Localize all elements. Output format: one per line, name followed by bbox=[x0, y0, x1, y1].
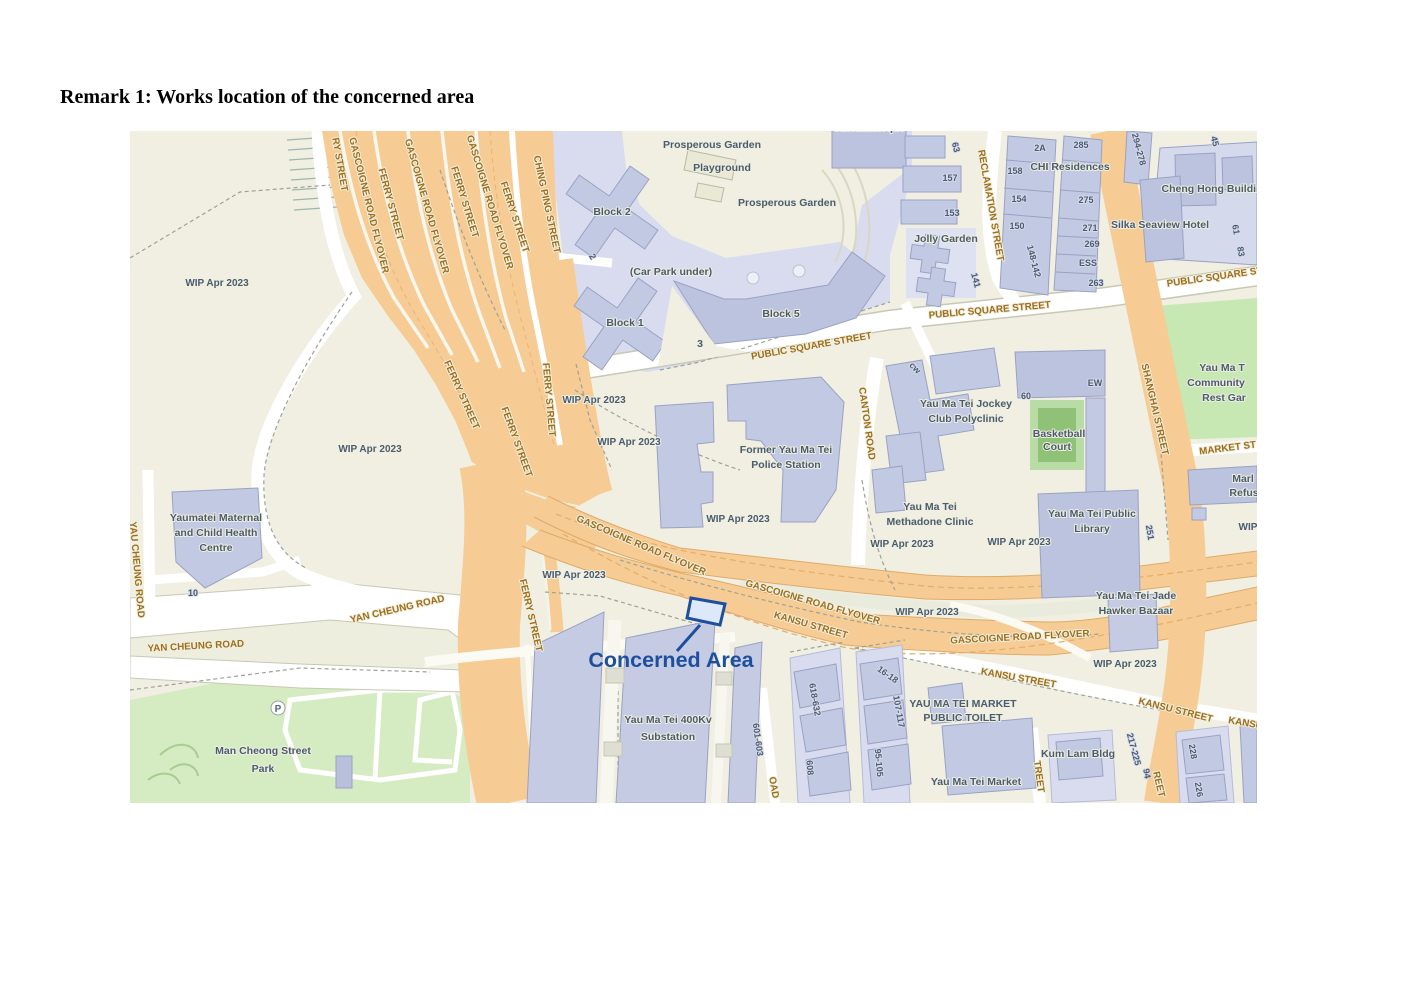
svg-text:Basketball: Basketball bbox=[1033, 428, 1086, 440]
svg-text:271: 271 bbox=[1082, 223, 1097, 233]
svg-text:157: 157 bbox=[942, 173, 957, 183]
svg-text:158: 158 bbox=[1007, 166, 1022, 176]
svg-text:10: 10 bbox=[188, 588, 198, 598]
svg-text:83: 83 bbox=[1235, 246, 1247, 258]
svg-text:Block 1: Block 1 bbox=[606, 317, 644, 329]
svg-text:Kum Lam Bldg: Kum Lam Bldg bbox=[1041, 748, 1115, 760]
svg-text:275: 275 bbox=[1078, 195, 1093, 205]
svg-text:Methadone Clinic: Methadone Clinic bbox=[887, 516, 974, 528]
svg-text:P: P bbox=[275, 704, 282, 715]
svg-text:269: 269 bbox=[1084, 239, 1099, 249]
svg-text:Concerned Area: Concerned Area bbox=[588, 648, 754, 672]
svg-text:EW: EW bbox=[1088, 378, 1103, 388]
svg-text:Yau Ma Tei: Yau Ma Tei bbox=[903, 501, 957, 513]
svg-text:WIP Apr 2023: WIP Apr 2023 bbox=[562, 395, 626, 406]
svg-text:ESS: ESS bbox=[1079, 258, 1097, 268]
svg-text:WIP Apr 2023: WIP Apr 2023 bbox=[338, 444, 402, 455]
svg-text:Jolly Garden: Jolly Garden bbox=[914, 233, 978, 245]
svg-text:Court: Court bbox=[1043, 441, 1071, 453]
svg-text:Yau Ma Tei Jockey: Yau Ma Tei Jockey bbox=[920, 398, 1012, 410]
svg-text:Park: Park bbox=[252, 763, 275, 775]
svg-text:Man Cheong Street: Man Cheong Street bbox=[215, 745, 311, 757]
svg-text:Hawker Bazaar: Hawker Bazaar bbox=[1099, 605, 1174, 617]
svg-text:153: 153 bbox=[944, 208, 959, 218]
svg-text:WIP Apr 2023: WIP Apr 2023 bbox=[542, 570, 606, 581]
svg-text:WIP: WIP bbox=[1239, 522, 1258, 533]
svg-text:61: 61 bbox=[1230, 224, 1242, 236]
svg-text:WIP Apr 2023: WIP Apr 2023 bbox=[987, 537, 1051, 548]
svg-text:WIP Apr 2023: WIP Apr 2023 bbox=[597, 437, 661, 448]
svg-text:154: 154 bbox=[1011, 194, 1026, 204]
svg-text:60: 60 bbox=[1021, 391, 1031, 401]
svg-text:WIP Apr 2023: WIP Apr 2023 bbox=[895, 607, 959, 618]
svg-text:Prosperous Garden: Prosperous Garden bbox=[663, 139, 761, 151]
svg-text:YAU MA TEI MARKET: YAU MA TEI MARKET bbox=[909, 698, 1017, 710]
svg-text:Yau Ma Tei Market: Yau Ma Tei Market bbox=[931, 776, 1022, 788]
svg-text:Cinematheque: Cinematheque bbox=[833, 122, 906, 134]
svg-text:WIP Apr 2023: WIP Apr 2023 bbox=[1093, 659, 1157, 670]
svg-text:Yau Ma Tei Jade: Yau Ma Tei Jade bbox=[1096, 590, 1176, 602]
svg-text:Prosperous Garden: Prosperous Garden bbox=[738, 197, 836, 209]
svg-text:(Car Park under): (Car Park under) bbox=[630, 266, 712, 278]
svg-text:and Child Health: and Child Health bbox=[175, 527, 258, 539]
svg-text:Community: Community bbox=[1187, 377, 1245, 389]
svg-text:CHI Residences: CHI Residences bbox=[1030, 161, 1110, 173]
svg-text:Block 2: Block 2 bbox=[593, 206, 631, 218]
svg-text:Police Station: Police Station bbox=[751, 459, 820, 471]
svg-text:Refus: Refus bbox=[1229, 487, 1258, 499]
svg-text:Former Yau Ma Tei: Former Yau Ma Tei bbox=[740, 444, 832, 456]
svg-text:Playground: Playground bbox=[693, 162, 751, 174]
svg-text:Yau Ma Tei 400Kv: Yau Ma Tei 400Kv bbox=[624, 714, 712, 726]
svg-text:150: 150 bbox=[1009, 221, 1024, 231]
svg-text:Library: Library bbox=[1074, 523, 1110, 535]
svg-text:WIP Apr 2023: WIP Apr 2023 bbox=[706, 514, 770, 525]
svg-text:608: 608 bbox=[804, 760, 815, 776]
svg-text:Yau Ma T: Yau Ma T bbox=[1199, 362, 1245, 374]
svg-text:263: 263 bbox=[1088, 278, 1103, 288]
svg-text:2A: 2A bbox=[1034, 143, 1046, 153]
svg-text:Marl: Marl bbox=[1232, 473, 1254, 485]
svg-text:Centre: Centre bbox=[199, 542, 232, 554]
svg-text:Club Polyclinic: Club Polyclinic bbox=[928, 413, 1003, 425]
svg-text:PUBLIC TOILET: PUBLIC TOILET bbox=[923, 712, 1003, 724]
svg-text:WIP Apr 2023: WIP Apr 2023 bbox=[870, 539, 934, 550]
svg-text:Yaumatei Maternal: Yaumatei Maternal bbox=[170, 512, 262, 524]
svg-text:285: 285 bbox=[1073, 140, 1088, 150]
svg-text:Rest Gar: Rest Gar bbox=[1202, 392, 1246, 404]
svg-text:Block 5: Block 5 bbox=[762, 308, 800, 320]
svg-text:WIP Apr 2023: WIP Apr 2023 bbox=[185, 278, 249, 289]
svg-text:3: 3 bbox=[697, 338, 703, 350]
svg-text:Yau Ma Tei Public: Yau Ma Tei Public bbox=[1048, 508, 1136, 520]
svg-text:Cheng Hong Buildin: Cheng Hong Buildin bbox=[1162, 183, 1263, 195]
svg-text:Substation: Substation bbox=[641, 731, 695, 743]
svg-text:94: 94 bbox=[1141, 768, 1153, 780]
svg-text:Silka Seaview Hotel: Silka Seaview Hotel bbox=[1111, 219, 1209, 231]
